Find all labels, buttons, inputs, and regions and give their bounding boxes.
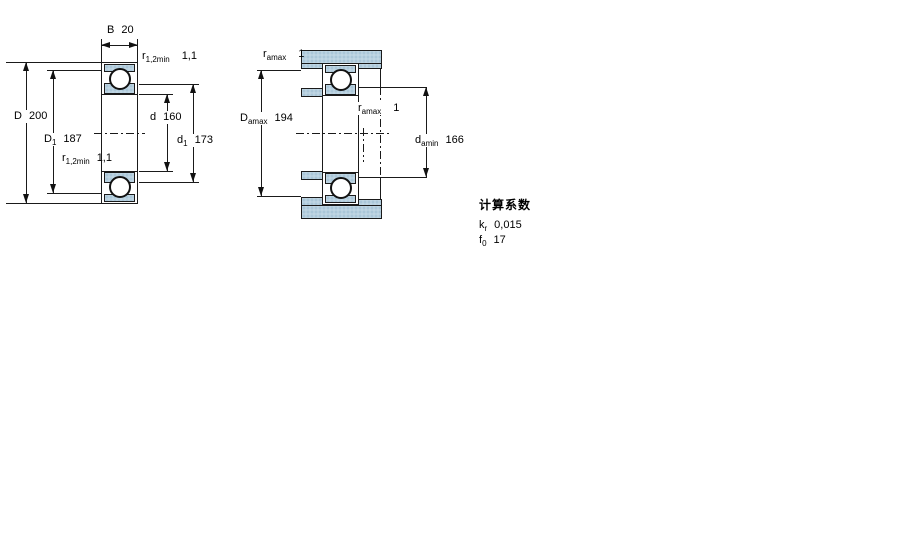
ext-line-D1-bottom xyxy=(47,193,101,194)
label-r12min-top: r1,2min1,1 xyxy=(142,50,197,63)
center-line xyxy=(94,133,145,134)
ext-line-d-bottom xyxy=(139,171,173,172)
shaft-contour-bottom xyxy=(380,177,381,199)
housing-section-top xyxy=(301,50,382,64)
dim-line-damin xyxy=(426,87,427,177)
label-D1: D1187 xyxy=(42,133,84,146)
housing-step-top-right xyxy=(358,63,382,69)
ext-line-d1-bottom xyxy=(139,182,199,183)
ext-line-D-bottom xyxy=(6,203,101,204)
arrowhead xyxy=(258,70,264,79)
label-damin: damin166 xyxy=(413,134,466,147)
dim-line-d1 xyxy=(193,84,194,182)
shaft-contour-top xyxy=(380,68,381,87)
label-d: d160 xyxy=(148,111,183,124)
shaft-shoulder-top xyxy=(301,88,323,97)
bore-line-top xyxy=(102,94,137,95)
factor-kr: kr0,015 xyxy=(479,219,522,232)
dim-line-d xyxy=(167,94,168,171)
ball-top xyxy=(330,69,352,91)
ext-line-damin-top xyxy=(359,87,427,88)
bore-line-top xyxy=(323,95,358,96)
shaft-phantom-line-short xyxy=(363,128,364,162)
arrowhead xyxy=(164,162,170,171)
bearing-drawing-canvas: B20 D200 D1187 d160 xyxy=(0,0,900,560)
arrowhead xyxy=(164,94,170,103)
label-ramax-shaft: ramax1 xyxy=(356,102,401,115)
shaft-shoulder-bottom xyxy=(301,171,323,180)
label-B: B20 xyxy=(107,24,134,37)
dim-line-Damax xyxy=(261,70,262,196)
arrowhead xyxy=(423,168,429,177)
arrowhead xyxy=(190,84,196,93)
arrowhead xyxy=(23,62,29,71)
label-D: D200 xyxy=(12,110,49,123)
factors-heading: 计算系数 xyxy=(479,196,531,213)
label-Damax: Damax194 xyxy=(238,112,295,125)
dim-line-D1 xyxy=(53,70,54,193)
ext-line-damin-bottom xyxy=(359,177,427,178)
label-r12min-bottom: r1,2min1,1 xyxy=(62,152,112,165)
arrowhead xyxy=(50,70,56,79)
housing-step-top-left xyxy=(301,63,323,69)
label-d1: d1173 xyxy=(175,134,215,147)
label-ramax-housing: ramax1 xyxy=(263,48,304,61)
factor-f0: f017 xyxy=(479,234,506,247)
shaft-phantom-line xyxy=(380,87,381,177)
arrowhead xyxy=(101,42,110,48)
housing-section-bottom xyxy=(301,205,382,219)
arrowhead xyxy=(258,187,264,196)
dim-line-D xyxy=(26,62,27,203)
ball-bottom xyxy=(109,176,131,198)
ball-top xyxy=(109,68,131,90)
center-line xyxy=(296,133,389,134)
arrowhead xyxy=(129,42,138,48)
ext-line-D-top xyxy=(6,62,101,63)
arrowhead xyxy=(423,87,429,96)
ext-line-Damax-bottom xyxy=(257,196,301,197)
arrowhead xyxy=(23,194,29,203)
arrowhead xyxy=(50,184,56,193)
ball-bottom xyxy=(330,177,352,199)
arrowhead xyxy=(190,173,196,182)
